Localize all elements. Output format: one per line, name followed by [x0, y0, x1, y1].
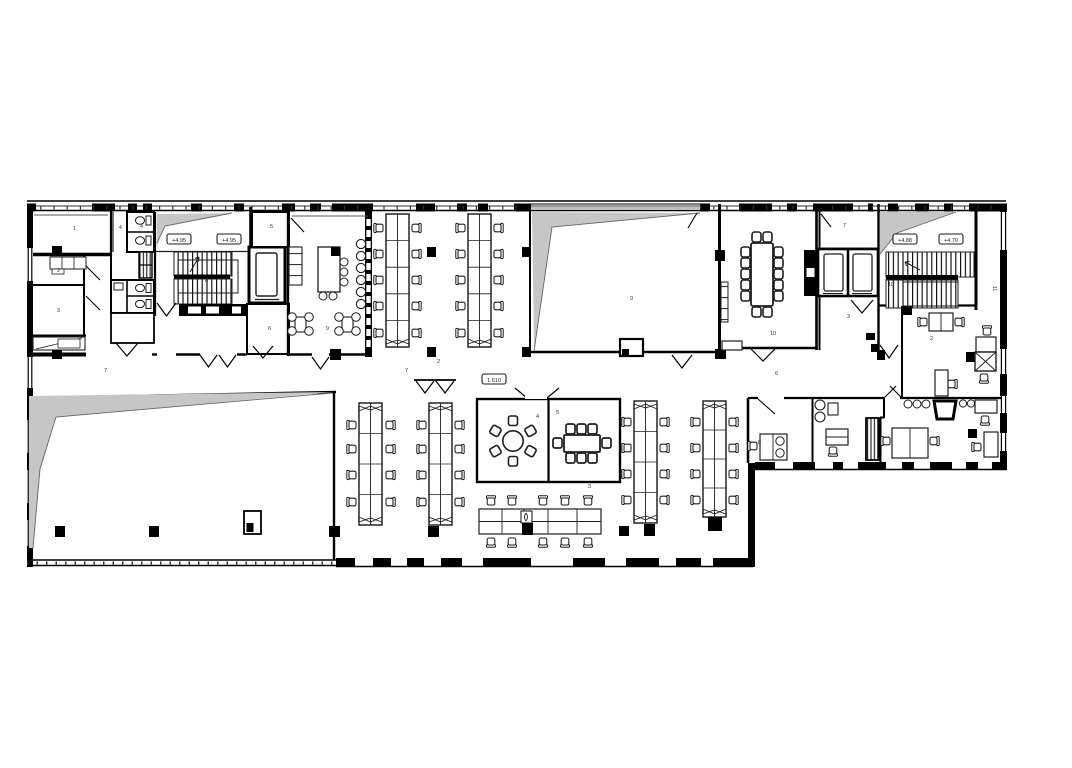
svg-text:+4.88: +4.88: [898, 238, 912, 244]
svg-text:6: 6: [775, 371, 778, 377]
svg-text:4: 4: [536, 414, 539, 420]
svg-text:10: 10: [888, 282, 894, 288]
svg-text:2: 2: [437, 359, 440, 365]
svg-text:+4.95: +4.95: [172, 238, 186, 244]
svg-text:8: 8: [205, 278, 208, 284]
svg-text:4: 4: [119, 225, 122, 231]
svg-text:3: 3: [57, 308, 60, 314]
svg-text:+4.70: +4.70: [944, 238, 958, 244]
svg-text:5: 5: [270, 224, 273, 230]
svg-text:3: 3: [847, 314, 850, 320]
svg-text:2: 2: [57, 268, 60, 274]
svg-text:1: 1: [73, 226, 76, 232]
svg-text:9: 9: [326, 326, 329, 332]
svg-text:2: 2: [930, 336, 933, 342]
svg-text:6: 6: [268, 326, 271, 332]
svg-text:1.610: 1.610: [487, 378, 501, 384]
svg-text:7: 7: [843, 223, 846, 229]
svg-text:4: 4: [140, 224, 143, 230]
svg-text:11: 11: [991, 286, 997, 291]
svg-text:7: 7: [104, 368, 107, 374]
svg-text:3: 3: [588, 484, 591, 490]
svg-text:9: 9: [630, 296, 633, 302]
svg-text:8: 8: [758, 440, 761, 446]
svg-text:+4.95: +4.95: [222, 238, 236, 244]
svg-text:7: 7: [405, 368, 408, 374]
svg-text:5: 5: [556, 410, 559, 416]
svg-text:10: 10: [770, 331, 776, 337]
